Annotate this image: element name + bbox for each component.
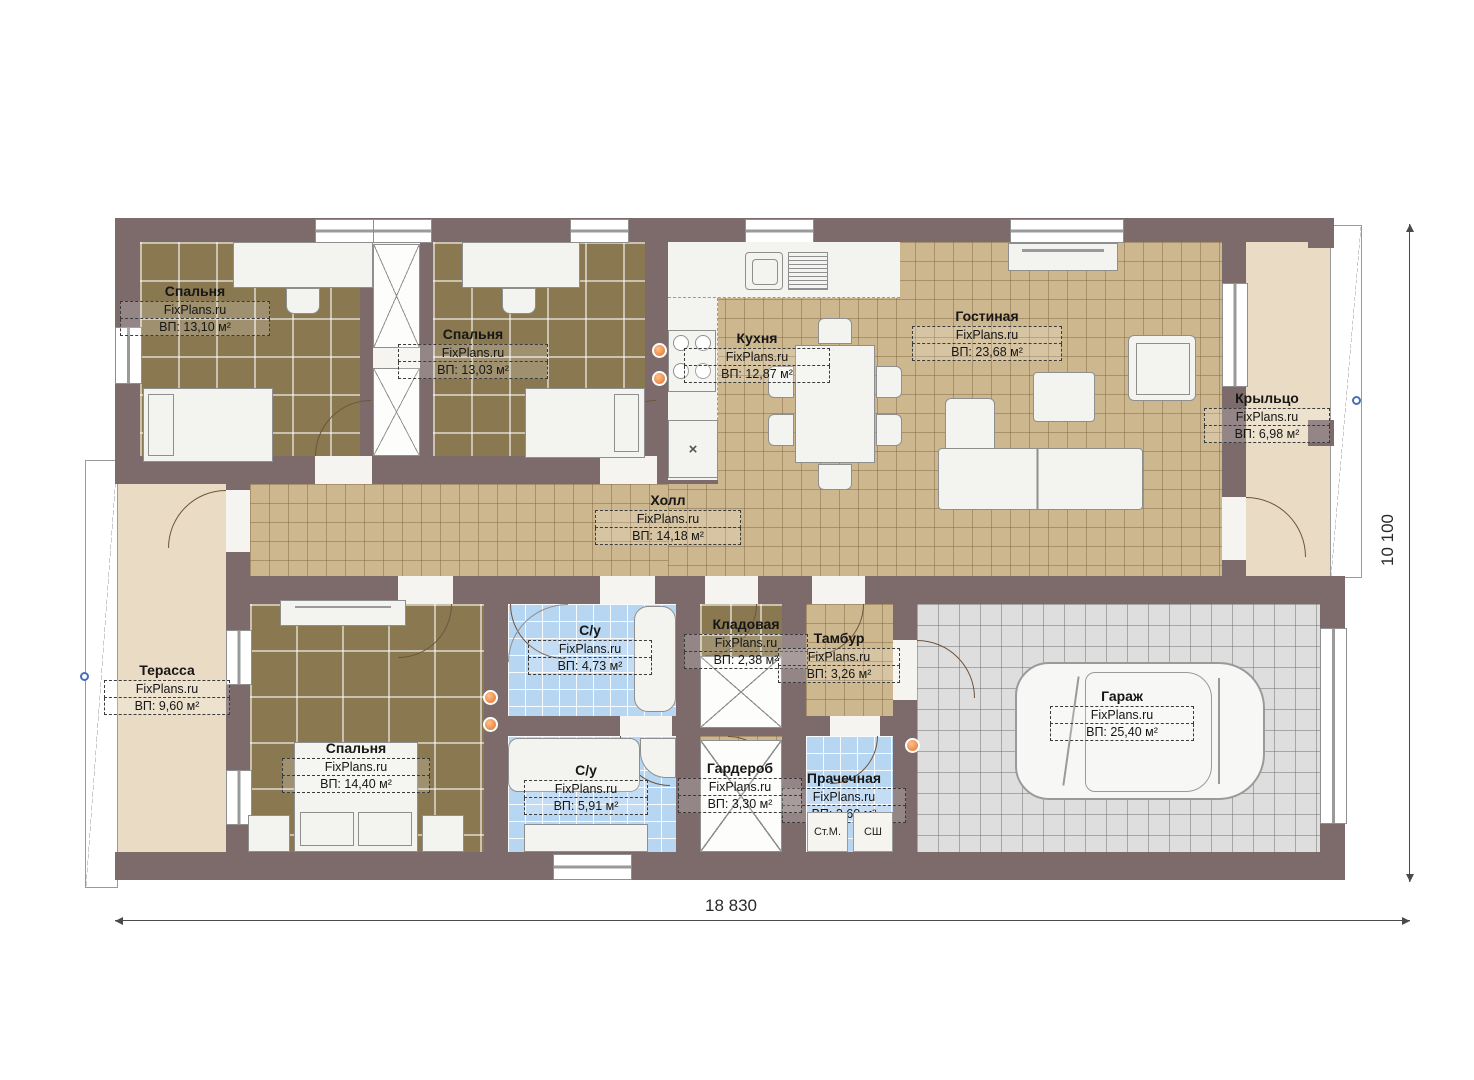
room-name: Крыльцо [1204, 390, 1330, 406]
dryer-label: СШ [864, 826, 882, 838]
window [315, 219, 375, 243]
chair [876, 414, 902, 446]
room-name: Тамбур [778, 630, 900, 646]
room-name: Гардероб [678, 760, 802, 776]
window [570, 219, 629, 243]
wall [880, 716, 917, 736]
room-label-living: Гостиная FixPlans.ru ВП: 23,68 м² [912, 308, 1062, 361]
room-area: ВП: 25,40 м² [1050, 724, 1194, 741]
washing-machine: Ст.М. [807, 812, 848, 852]
arrow-icon [1402, 917, 1410, 925]
dimension-height: 10 100 [1378, 514, 1398, 566]
marker-dot [80, 672, 89, 681]
door-opening [830, 716, 880, 736]
fridge-mark: × [689, 441, 698, 458]
wall [372, 456, 600, 484]
window [745, 219, 814, 243]
desk [233, 242, 373, 288]
window [553, 854, 632, 880]
room-area: ВП: 12,87 м² [684, 366, 830, 383]
dresser-line [295, 606, 391, 608]
watermark: FixPlans.ru [684, 348, 830, 366]
socket-dot [483, 717, 498, 732]
socket-dot [483, 690, 498, 705]
watermark: FixPlans.ru [528, 640, 652, 658]
room-name: Гостиная [912, 308, 1062, 324]
room-label-kitchen: Кухня FixPlans.ru ВП: 12,87 м² [684, 330, 830, 383]
watermark: FixPlans.ru [398, 344, 548, 362]
room-name: Холл [595, 492, 741, 508]
room-name: Кухня [684, 330, 830, 346]
room-label-terrace: Терасса FixPlans.ru ВП: 9,60 м² [104, 662, 230, 715]
wall [1320, 822, 1345, 880]
socket-dot [652, 343, 667, 358]
wall [226, 852, 1345, 880]
desk [462, 242, 580, 288]
wall [226, 823, 250, 880]
door-opening [600, 576, 655, 604]
chair [502, 288, 536, 314]
built-in-wardrobe [373, 368, 420, 456]
vanity [524, 824, 648, 852]
wall [453, 576, 600, 604]
dimension-line-right [1409, 224, 1410, 882]
room-label-bedroom2: Спальня FixPlans.ru ВП: 13,03 м² [398, 326, 548, 379]
wall [1222, 218, 1246, 283]
room-area: ВП: 14,40 м² [282, 776, 430, 793]
pillow [358, 812, 412, 846]
dimension-width: 18 830 [705, 896, 757, 916]
entrance-opening [1222, 497, 1246, 560]
fridge: × [668, 420, 718, 478]
pillow [300, 812, 354, 846]
watermark: FixPlans.ru [524, 780, 648, 798]
door-opening [315, 456, 372, 484]
watermark: FixPlans.ru [104, 680, 230, 698]
window [1222, 283, 1248, 387]
watermark: FixPlans.ru [912, 326, 1062, 344]
wall [1222, 560, 1246, 578]
window [1010, 219, 1124, 243]
room-area: ВП: 5,91 м² [524, 798, 648, 815]
arrow-icon [1406, 874, 1414, 882]
room-label-vestibule: Тамбур FixPlans.ru ВП: 3,26 м² [778, 630, 900, 683]
arrow-icon [115, 917, 123, 925]
tv [1022, 249, 1104, 252]
wall [865, 576, 893, 604]
door-opening [398, 576, 453, 604]
room-label-bedroom3: Спальня FixPlans.ru ВП: 14,40 м² [282, 740, 430, 793]
room-name: Терасса [104, 662, 230, 678]
room-name: Спальня [398, 326, 548, 342]
socket-dot [905, 738, 920, 753]
room-label-bath2: С/у FixPlans.ru ВП: 5,91 м² [524, 762, 648, 815]
nightstand [422, 815, 464, 852]
room-name: Спальня [120, 283, 270, 299]
wall [758, 576, 812, 604]
dimension-line-bottom [115, 920, 1410, 921]
washer-label: Ст.М. [814, 826, 841, 838]
room-area: ВП: 14,18 м² [595, 528, 741, 545]
room-name: С/у [524, 762, 648, 778]
armchair-seat [1136, 343, 1190, 395]
nightstand [248, 815, 290, 852]
room-label-garage: Гараж FixPlans.ru ВП: 25,40 м² [1050, 688, 1194, 741]
floor-plan: × Ст.М. СШ Спальня FixPlans.ru [0, 0, 1474, 1080]
watermark: FixPlans.ru [778, 648, 900, 666]
watermark: FixPlans.ru [1050, 706, 1194, 724]
watermark: FixPlans.ru [678, 778, 802, 796]
room-label-wardrobe: Гардероб FixPlans.ru ВП: 3,30 м² [678, 760, 802, 813]
coffee-table [1033, 372, 1095, 422]
kitchen-counter [668, 242, 900, 298]
room-area: ВП: 13,10 м² [120, 319, 270, 336]
window [373, 219, 432, 243]
tv-stand [1008, 243, 1118, 271]
socket-dot [652, 371, 667, 386]
door-opening [600, 456, 657, 484]
drainer [788, 252, 828, 290]
dresser [280, 600, 406, 626]
room-label-porch: Крыльцо FixPlans.ru ВП: 6,98 м² [1204, 390, 1330, 443]
wall [655, 576, 705, 604]
room-area: ВП: 23,68 м² [912, 344, 1062, 361]
room-area: ВП: 3,26 м² [778, 666, 900, 683]
room-name: Гараж [1050, 688, 1194, 704]
room-label-bath1: С/у FixPlans.ru ВП: 4,73 м² [528, 622, 652, 675]
wall [893, 576, 1345, 604]
wall [1320, 576, 1345, 628]
room-name: С/у [528, 622, 652, 638]
wall [1308, 218, 1334, 248]
chair [818, 464, 852, 490]
chair [768, 414, 794, 446]
room-name: Спальня [282, 740, 430, 756]
sink-bowl [752, 259, 778, 285]
pillow [614, 394, 639, 452]
garage-gate [1320, 628, 1347, 824]
room-label-bedroom1: Спальня FixPlans.ru ВП: 13,10 м² [120, 283, 270, 336]
chair [286, 288, 320, 314]
watermark: FixPlans.ru [1204, 408, 1330, 426]
sofa [938, 448, 1143, 510]
room-area: ВП: 13,03 м² [398, 362, 548, 379]
room-area: ВП: 6,98 м² [1204, 426, 1330, 443]
watermark: FixPlans.ru [595, 510, 741, 528]
room-label-hall: Холл FixPlans.ru ВП: 14,18 м² [595, 492, 741, 545]
door-opening [226, 490, 250, 552]
pillow [148, 394, 174, 456]
door-opening [620, 716, 672, 736]
wall [806, 716, 830, 736]
dryer: СШ [853, 812, 893, 852]
wall [115, 218, 1330, 242]
room-area: ВП: 3,30 м² [678, 796, 802, 813]
arrow-icon [1406, 224, 1414, 232]
door-opening [812, 576, 865, 604]
room-area: ВП: 4,73 м² [528, 658, 652, 675]
wall [484, 716, 620, 736]
watermark: FixPlans.ru [120, 301, 270, 319]
chair [876, 366, 902, 398]
door-opening [705, 576, 758, 604]
watermark: FixPlans.ru [282, 758, 430, 776]
car-rear-window [1218, 678, 1220, 784]
marker-dot [1352, 396, 1361, 405]
room-area: ВП: 9,60 м² [104, 698, 230, 715]
